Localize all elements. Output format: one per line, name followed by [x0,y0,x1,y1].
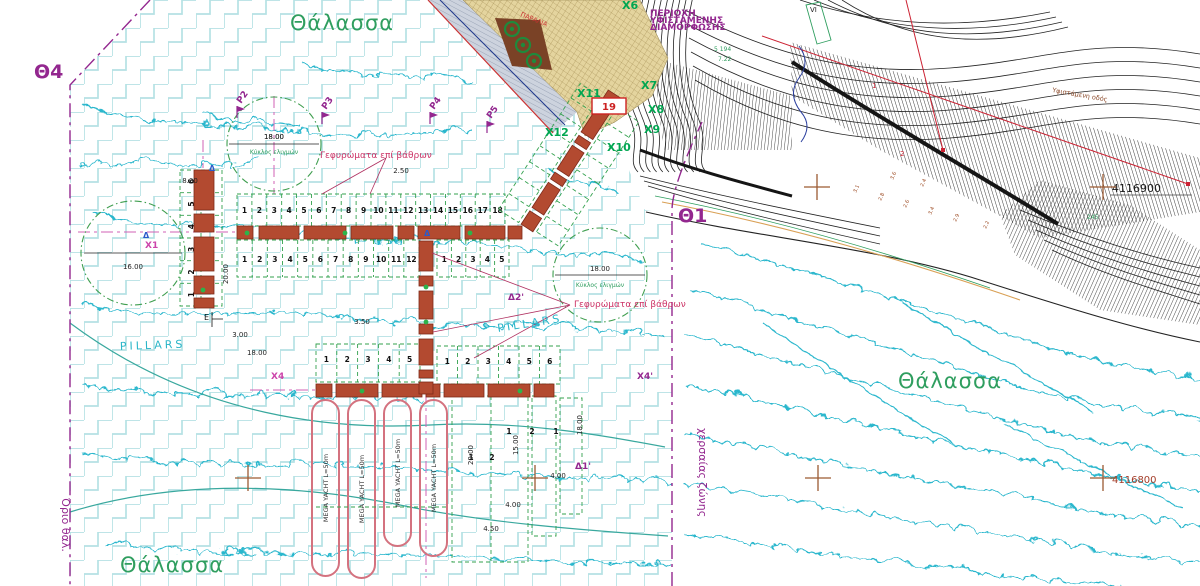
dimension-label: 2.50 [393,167,409,175]
dimension-label: 4.50 [483,525,499,533]
dimension-label: 3.50 [354,318,370,326]
berth-number: 1 [242,255,247,264]
delta-marker-label: Δ2' [508,293,524,303]
berth-number: 1 [324,355,329,364]
traverse-point [1186,182,1190,186]
pier-node [518,389,523,394]
bridges-annotation-1: Γεφυρώματα επί βάθρων [320,150,432,161]
slope-mark: 2 [900,150,904,158]
berth-number: 6 [316,206,321,215]
delta-icon: Δ [209,164,216,173]
station-label: X10 [607,141,631,154]
pier-segment [194,170,214,210]
pier-segment [419,370,433,378]
berth-number: 3 [470,255,475,264]
berth-number: 16 [463,206,473,215]
berth-number: 4 [485,255,490,264]
dimension-label: 18.00 [247,349,267,357]
dimension-label: 18.00 [590,265,610,273]
sea-label-top: Θάλασσα [290,11,394,35]
sea-label-bottom: Θάλασσα [120,553,224,577]
northing-top: 4116900 [1112,182,1161,195]
berth-number: 12 [406,255,416,264]
turning-circle-label-1: Κύκλος ελιγμών [250,149,299,156]
pier-segment [194,237,214,271]
pier-segment [398,226,414,239]
sea-label-right: Θάλασσα [898,369,1002,393]
dimension-label: 18.00 [264,133,284,141]
vertex-theta4: Θ4 [34,61,63,83]
section-mark: Ε [204,313,209,322]
berth-number: 9 [363,255,368,264]
pier-segment [304,226,346,239]
berth-number: 9 [361,206,366,215]
berth-number: 5 [407,355,412,364]
berth-number: 5 [499,255,504,264]
dimension-label: 15.00 [512,435,520,455]
marina-site-plan: 1234567891011121314151617181234567891011… [0,0,1200,586]
berth-number: 18 [492,206,502,215]
berth-number: 10 [376,255,386,264]
berth-number: 7 [333,255,338,264]
berth-number: 10 [373,206,383,215]
berth-number: 1 [553,427,558,436]
berth-number: 4 [506,357,511,366]
station-label: X9 [644,123,660,136]
turning-circle-label-2: Κύκλος ελιγμών [576,282,625,289]
pier-segment [194,298,214,308]
berth-number: 3 [486,357,491,366]
mega-yacht-label: MEGA YACHT L=50m [322,454,330,522]
dimension-label: 20.00 [467,445,475,465]
berth-number: 3 [272,206,277,215]
pier-segment [488,384,530,397]
vertex-theta1: Θ1 [678,205,707,227]
station-label: X7 [641,79,657,92]
elevation-label: 245 [1087,214,1099,221]
mega-yacht-label: MEGA YACHT L=50m [394,439,402,507]
dimension-label: 16.00 [123,263,143,271]
elevation-label: 5 194 [714,46,731,53]
berth-number: 6 [318,255,323,264]
delta-marker-label: Δ1' [575,462,591,472]
pier-segment [316,384,332,397]
berth-number: 17 [477,206,487,215]
berth-number: 1 [242,206,247,215]
mega-yacht-label: MEGA YACHT L=50m [358,455,366,523]
dimension-label: 18.00 [576,415,584,435]
berth-number: 2 [465,357,470,366]
berth-number: 12 [403,206,413,215]
pier-node [360,389,365,394]
pier-segment [419,339,433,365]
station-label: X6 [622,0,638,12]
berth-number: 1 [442,255,447,264]
berth-number: 2 [257,206,262,215]
pier-segment [419,241,433,271]
boundary-label-right: χερσαίας ζώνης [696,428,709,517]
bridges-annotation-2: Γεφυρώματα επί βάθρων [574,299,686,310]
dimension-label: 4.00 [505,501,521,509]
mega-yacht-label: MEGA YACHT L=50m [430,444,438,512]
berth-number: 3 [365,355,370,364]
berth-number: 6 [547,357,552,366]
berth-number: 4 [287,206,292,215]
berth-number: 2 [529,427,534,436]
pier-node [468,231,473,236]
traverse-point [941,148,945,152]
pier-segment [419,324,433,334]
northing-bottom: 4116800 [1112,475,1157,486]
delta-icon: Δ [143,231,150,240]
zone-note: ΔΙΑΜΟΡΦΩΣΗΣ [650,23,726,33]
slope-mark: 1 [872,82,876,90]
dimension-label: 20.00 [222,264,230,284]
station-label: X12 [545,126,569,139]
dimension-label: 4.00 [550,472,566,480]
pier-segment [351,226,393,239]
berth-number: 11 [388,206,398,215]
pier-node [424,285,429,290]
dimension-label: 3.00 [232,331,248,339]
parcel-vi-label: VI [810,6,817,14]
berth-number: 7 [331,206,336,215]
boxed-station-label: 19 [602,102,616,113]
berth-number: 1 [506,427,511,436]
delta-icon: Δ [424,229,431,238]
dimension-label: 8.00 [182,177,198,185]
berth-number: 5 [301,206,306,215]
berth-number: 5 [303,255,308,264]
berth-number: 1 [445,357,450,366]
pillars-label-left: PILLARS [120,338,186,353]
pier-node [424,320,429,325]
pier-segment [508,226,522,239]
berth-number: 8 [346,206,351,215]
pier-segment [336,384,378,397]
station-label: X4' [637,372,653,382]
berth-number: 4 [287,255,292,264]
pier-node [245,231,250,236]
berth-number: 14 [433,206,443,215]
pier-segment [444,384,484,397]
pier-segment [534,384,554,397]
pier-segment [194,214,214,232]
berth-number: 13 [418,206,428,215]
berth-number: 4 [386,355,391,364]
pier-segment [259,226,299,239]
berth-number: 2 [489,453,494,462]
berth-number: 5 [527,357,532,366]
berth-number: 15 [448,206,458,215]
site-plan-canvas: 1234567891011121314151617181234567891011… [0,0,1200,586]
elevation-label: 7.22 [718,56,732,63]
berth-number: 3 [272,255,277,264]
pier-segment [419,382,433,394]
pier-segment [419,276,433,286]
pier-node [201,288,206,293]
pier-segment [419,291,433,319]
berth-number: 2 [345,355,350,364]
station-label: X8 [648,103,664,116]
berth-number: 8 [348,255,353,264]
pier-segment [382,384,422,397]
station-label: X1 [145,241,158,251]
station-label: X4 [271,372,284,382]
boundary-label-left: Όριο θαλ. [59,497,72,552]
pier-node [343,231,348,236]
berth-number: 11 [391,255,401,264]
berth-number: 2 [257,255,262,264]
